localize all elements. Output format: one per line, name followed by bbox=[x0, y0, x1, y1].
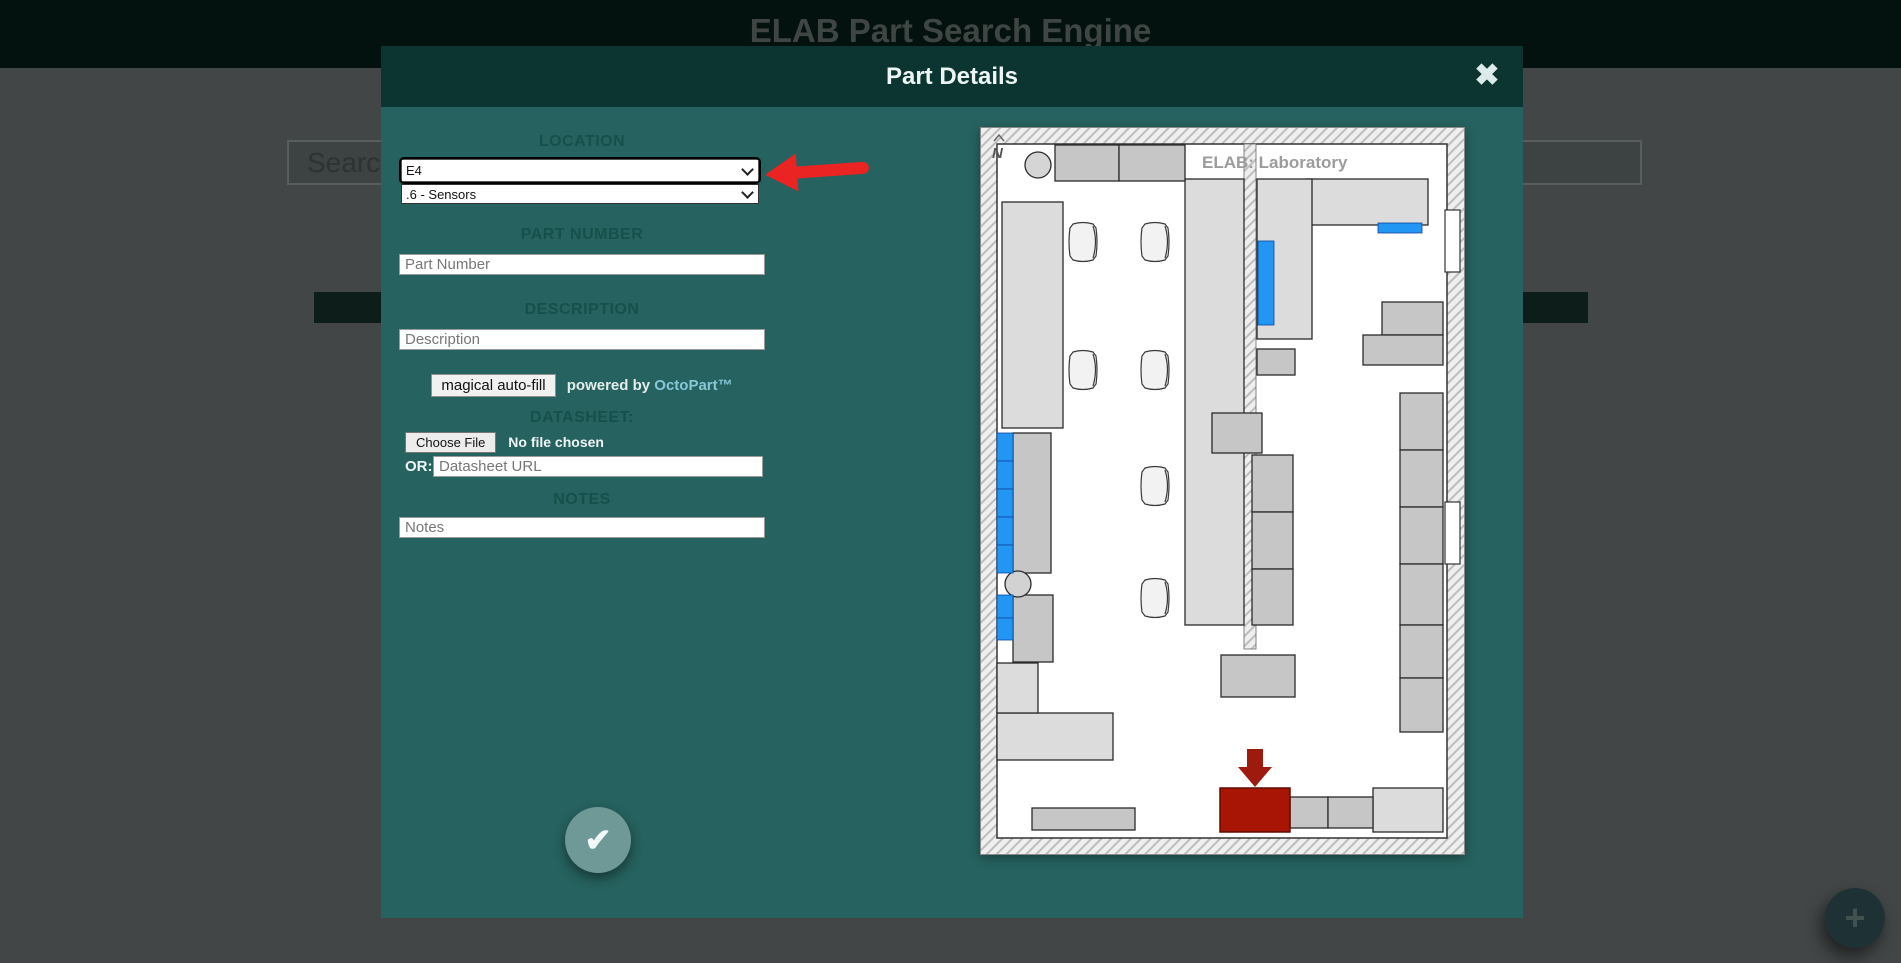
compass-letter: N bbox=[992, 145, 1004, 162]
datasheet-file-row: Choose File No file chosen bbox=[405, 432, 604, 453]
part-form: LOCATION E4 .6 - Sensors PART NUMBER DES… bbox=[399, 107, 765, 918]
file-status-text: No file chosen bbox=[508, 434, 604, 450]
or-label: OR: bbox=[405, 456, 433, 478]
location-area-select-wrap: E4 bbox=[401, 159, 759, 182]
modal-body: LOCATION E4 .6 - Sensors PART NUMBER DES… bbox=[381, 107, 1523, 918]
datasheet-url-input[interactable] bbox=[433, 456, 763, 477]
choose-file-button[interactable]: Choose File bbox=[405, 432, 496, 453]
close-icon: ✖ bbox=[1474, 59, 1499, 92]
location-shelf-select[interactable]: .6 - Sensors bbox=[402, 185, 758, 203]
submit-button[interactable]: ✔ bbox=[565, 807, 631, 873]
location-area-select[interactable]: E4 bbox=[402, 160, 758, 181]
powered-by-text: powered by bbox=[567, 377, 650, 394]
magical-autofill-button[interactable]: magical auto-fill bbox=[431, 374, 555, 397]
octopart-link[interactable]: OctoPart™ bbox=[654, 377, 732, 394]
notes-label: NOTES bbox=[399, 491, 765, 509]
description-label: DESCRIPTION bbox=[399, 301, 765, 319]
datasheet-label: DATASHEET: bbox=[399, 409, 765, 427]
annotation-arrow-icon bbox=[763, 145, 873, 197]
close-button[interactable]: ✖ bbox=[1467, 56, 1507, 96]
autofill-row: magical auto-fill powered by OctoPart™ bbox=[399, 374, 765, 397]
part-number-input[interactable] bbox=[399, 254, 765, 275]
screen: ELAB Part Search Engine + Part Details ✖… bbox=[0, 0, 1901, 963]
checkmark-icon: ✔ bbox=[585, 824, 612, 856]
notes-input[interactable] bbox=[399, 517, 765, 538]
part-number-label: PART NUMBER bbox=[399, 226, 765, 244]
location-shelf-select-wrap: .6 - Sensors bbox=[401, 184, 759, 204]
modal-title: Part Details bbox=[381, 46, 1523, 107]
location-map[interactable]: N ELAB: Laboratory bbox=[980, 127, 1465, 855]
location-label: LOCATION bbox=[399, 133, 765, 151]
plus-icon: + bbox=[1844, 900, 1865, 936]
description-input[interactable] bbox=[399, 329, 765, 350]
part-details-modal: Part Details ✖ LOCATION E4 .6 - Sensors bbox=[381, 46, 1523, 918]
add-part-button[interactable]: + bbox=[1825, 888, 1885, 948]
map-title: ELAB: Laboratory bbox=[1202, 153, 1348, 172]
